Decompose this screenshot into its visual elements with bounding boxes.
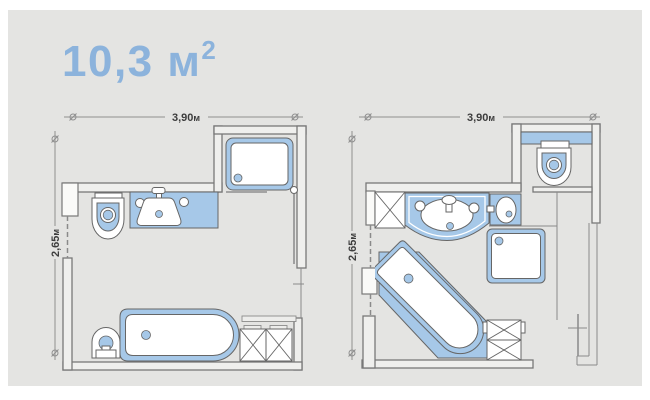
shower-cabin-right — [487, 229, 545, 283]
corner-washbasin-right — [487, 194, 521, 225]
vanity-sink-left — [130, 188, 218, 229]
washing-machine-right — [375, 192, 405, 228]
dim-width-right-label: 3,90м — [467, 112, 495, 124]
dim-height-left-label: 2,65м — [50, 229, 62, 257]
storage-cabinet-right — [483, 320, 525, 360]
bathtub-left — [120, 309, 239, 361]
floorplan-page: 10,3 м2 3,90м 2,65м — [0, 0, 650, 400]
wall-hung-toilet-left — [92, 193, 124, 239]
bidet-left — [92, 328, 120, 359]
bathroom-floorplans-canvas: 10,3 м2 3,90м 2,65м — [0, 0, 650, 400]
dim-width-left-label: 3,90м — [172, 112, 200, 124]
dim-height-right-label: 2,65м — [347, 233, 359, 261]
area-title: 10,3 м2 — [62, 35, 217, 86]
